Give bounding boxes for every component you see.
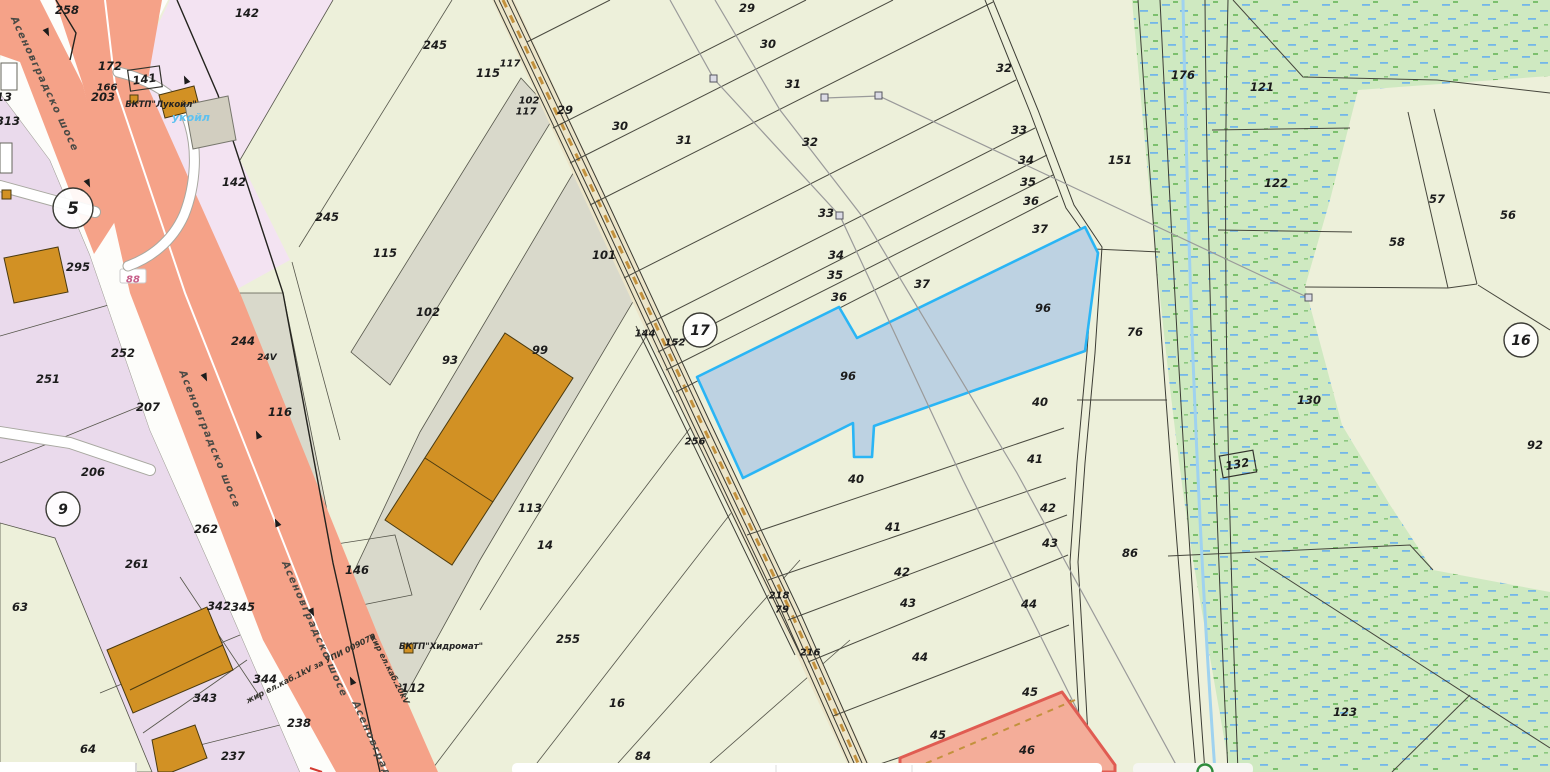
parcel-label: 262 [194,522,218,536]
block-number-label: 17 [690,323,710,339]
parcel-label: 32 [996,61,1012,75]
parcel-label: 117 [500,59,521,70]
parcel-label: 99 [532,343,548,357]
parcel-label: 122 [1264,176,1288,190]
bottom-right-bar[interactable] [1133,763,1253,772]
parcel-label: 40 [847,472,864,486]
parcel-label: 144 [635,329,656,340]
parcel-label: 261 [125,557,149,571]
parcel-label: 142 [235,6,259,20]
parcel-label: 44 [1020,597,1037,611]
block-number-label: 9 [58,502,68,518]
parcel-label: 13 [0,90,12,104]
parcel-label: 244 [231,334,255,348]
parcel-label: 33 [818,206,834,220]
parcel-label: 45 [929,728,946,742]
road-plate-label: 88 [126,275,140,286]
parcel-label: 172 [98,59,122,73]
parcel-label: 43 [899,596,916,610]
parcel-label: 251 [36,372,60,386]
block-number-label: 16 [1511,333,1531,349]
parcel-label: 258 [55,3,79,17]
parcel-label: 116 [268,405,292,419]
parcel-label: 96 [840,369,856,383]
block-number-label: 5 [67,199,79,219]
parcel-label: 76 [1127,325,1143,339]
bottom-left-bar[interactable] [0,762,137,772]
parcel-label: 203 [91,90,115,104]
parcel-label: 113 [518,501,542,515]
parcel-label: 123 [1333,705,1357,719]
parcel-label: 33 [1011,123,1027,137]
parcel-label: 57 [1429,192,1445,206]
parcel-label: 176 [1171,68,1195,82]
parcel-label: 37 [914,277,930,291]
parcel-label: 142 [222,175,246,189]
parcel-label: 63 [12,600,28,614]
parcel-label: 42 [893,565,910,579]
parcel-label: 151 [1108,153,1132,167]
parcel-label: 30 [612,119,628,133]
parcel-label: 256 [685,437,706,448]
parcel-label: 64 [80,742,96,756]
parcel-label: 295 [66,260,90,274]
parcel-label: 252 [111,346,135,360]
parcel-label: 102 [519,96,540,107]
parcel-label: 56 [1500,208,1516,222]
parcel-label: 16 [609,696,625,710]
parcel-label: 32 [802,135,818,149]
parcel-label: 207 [136,400,160,414]
parcel-label: 31 [785,77,801,91]
parcel-label: 130 [1297,393,1321,407]
parcel-label: 115 [373,246,397,260]
parcel-label: 218 [769,591,790,602]
parcel-label: 35 [1020,175,1036,189]
parcel-label: 146 [345,563,369,577]
parcel-label: 35 [827,268,843,282]
parcel-label: 101 [592,248,616,262]
parcel-label: 29 [557,103,573,117]
cadastral-map-viewport[interactable]: 2581422451151171021172929303132303132333… [0,0,1550,772]
parcel-label: 79 [775,605,789,616]
parcel-label: 29 [739,1,755,15]
poi-label: укойл [172,111,210,124]
parcel-label: 345 [231,600,255,614]
parcel-label: 58 [1389,235,1405,249]
parcel-label: 43 [1041,536,1058,550]
parcel-label: 44 [911,650,928,664]
parcel-label: 343 [193,691,217,705]
parcel-label: 24V [257,353,278,363]
parcel-label: 41 [884,520,901,534]
parcel-label: 238 [287,716,311,730]
parcel-label: 86 [1122,546,1138,560]
parcel-label: 41 [1026,452,1043,466]
parcel-label: 40 [1031,395,1048,409]
parcel-label: 245 [423,38,447,52]
parcel-label: 46 [1018,743,1035,757]
parcel-label: 206 [81,465,105,479]
parcel-label: 342 [207,599,231,613]
parcel-label: 245 [315,210,339,224]
building [1,63,17,90]
parcel-label: 34 [828,248,844,262]
building [2,190,11,199]
poi-label: БКТП"Лукойл" [125,100,197,110]
parcel-label: 121 [1250,80,1274,94]
parcel-label: 36 [1023,194,1039,208]
parcel-label: 237 [221,749,245,763]
parcel-label: 31 [676,133,692,147]
parcel-label: 14 [537,538,553,552]
parcel-label: 216 [800,648,821,659]
parcel-label: 313 [0,114,20,128]
parcel-label: 36 [831,290,847,304]
parcel-label: 117 [516,107,537,118]
parcel-label: 92 [1527,438,1543,452]
cadastral-map-svg: 2581422451151171021172929303132303132333… [0,0,1550,772]
parcel-label: 37 [1032,222,1048,236]
parcel-label: 42 [1039,501,1056,515]
parcel-label: 30 [760,37,776,51]
parcel-label: 45 [1021,685,1038,699]
parcel-label: 255 [556,632,580,646]
bottom-toolbar[interactable] [512,763,1102,772]
building [0,143,12,173]
parcel-label: 93 [442,353,458,367]
poi-label: БКТП"Хидромат" [399,642,483,652]
parcel-label: 115 [476,66,500,80]
parcel-label: 84 [635,749,651,763]
parcel-label: 96 [1035,301,1051,315]
parcel-label: 152 [665,338,686,349]
parcel-label: 34 [1018,153,1034,167]
parcel-label: 102 [416,305,440,319]
